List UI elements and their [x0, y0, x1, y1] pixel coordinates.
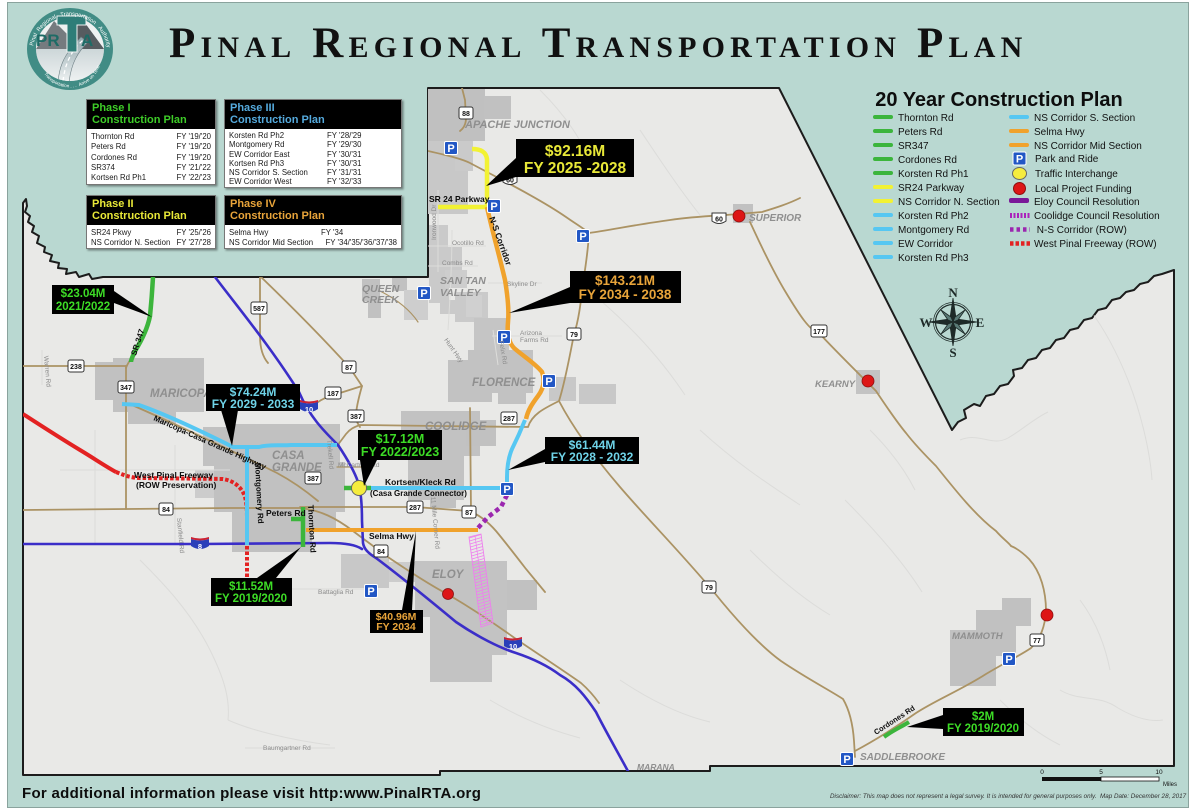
svg-text:8: 8 [198, 542, 202, 551]
svg-text:FY 2025 -2028: FY 2025 -2028 [524, 160, 627, 177]
svg-text:N: N [948, 285, 958, 300]
svg-text:MARANA: MARANA [637, 762, 675, 772]
svg-text:Peters Rd: Peters Rd [266, 508, 306, 518]
svg-text:Baumgartner Rd: Baumgartner Rd [263, 745, 311, 752]
svg-text:77: 77 [1033, 638, 1041, 645]
svg-text:Combs Rd: Combs Rd [442, 260, 473, 267]
svg-text:238: 238 [70, 364, 82, 371]
svg-text:$92.16M: $92.16M [545, 143, 605, 160]
svg-text:$23.04M: $23.04M [61, 288, 106, 300]
svg-text:CREEK: CREEK [362, 294, 400, 306]
svg-text:84: 84 [162, 507, 170, 514]
svg-text:Ironwood Dr: Ironwood Dr [431, 204, 438, 240]
svg-text:KEARNY: KEARNY [815, 379, 857, 390]
svg-text:10: 10 [509, 642, 517, 651]
svg-text:$11.52M: $11.52M [229, 581, 273, 593]
svg-text:(ROW Preservation): (ROW Preservation) [136, 480, 216, 490]
svg-text:Arizona: Arizona [520, 330, 542, 337]
svg-text:SUPERIOR: SUPERIOR [749, 213, 802, 224]
svg-text:A: A [81, 31, 93, 50]
svg-text:CASA: CASA [272, 450, 305, 462]
svg-text:MAMMOTH: MAMMOTH [952, 631, 1004, 642]
svg-text:5: 5 [1099, 769, 1103, 776]
svg-text:84: 84 [377, 549, 385, 556]
svg-text:Selma Hwy: Selma Hwy [369, 531, 414, 541]
svg-text:FLORENCE: FLORENCE [472, 377, 536, 389]
svg-text:$2M: $2M [972, 711, 994, 723]
svg-text:387: 387 [350, 414, 362, 421]
svg-text:S: S [949, 345, 956, 360]
svg-text:79: 79 [570, 332, 578, 339]
svg-text:P: P [1016, 154, 1023, 166]
svg-text:177: 177 [813, 329, 825, 336]
svg-text:88: 88 [462, 111, 470, 118]
svg-text:87: 87 [345, 365, 353, 372]
svg-text:Skyline Dr: Skyline Dr [507, 281, 537, 288]
svg-text:(Casa Grande Connector): (Casa Grande Connector) [370, 489, 467, 498]
svg-text:187: 187 [327, 391, 339, 398]
svg-text:FY 2019/2020: FY 2019/2020 [947, 723, 1019, 735]
svg-text:SAN TAN: SAN TAN [440, 275, 486, 287]
svg-text:2021/2022: 2021/2022 [56, 301, 110, 313]
svg-text:287: 287 [409, 505, 421, 512]
svg-text:Ocotillo Rd: Ocotillo Rd [452, 240, 484, 247]
svg-text:APACHE JUNCTION: APACHE JUNCTION [464, 119, 571, 131]
svg-text:VALLEY: VALLEY [440, 287, 482, 299]
svg-text:Miles: Miles [1163, 782, 1177, 788]
svg-text:FY 2029 - 2033: FY 2029 - 2033 [212, 397, 295, 411]
svg-text:Kortsen/Kleck Rd: Kortsen/Kleck Rd [385, 477, 456, 487]
svg-text:MARICOPA: MARICOPA [150, 388, 212, 400]
svg-text:$17.12M: $17.12M [376, 432, 425, 446]
svg-text:FY 2034 - 2038: FY 2034 - 2038 [579, 287, 672, 302]
svg-text:W: W [920, 315, 933, 330]
svg-text:Battaglia Rd: Battaglia Rd [318, 589, 354, 596]
svg-text:Farms Rd: Farms Rd [520, 337, 549, 344]
svg-text:FY 2022/2023: FY 2022/2023 [361, 445, 439, 459]
svg-text:60: 60 [715, 217, 723, 224]
svg-text:ELOY: ELOY [432, 569, 465, 581]
svg-text:$143.21M: $143.21M [595, 273, 655, 288]
svg-text:0: 0 [1040, 769, 1044, 776]
svg-text:287: 287 [503, 416, 515, 423]
svg-text:SADDLEBROOKE: SADDLEBROOKE [860, 752, 945, 763]
svg-text:87: 87 [465, 510, 473, 517]
svg-text:FY 2034: FY 2034 [376, 621, 416, 633]
svg-text:387: 387 [307, 476, 319, 483]
svg-text:FY 2028 - 2032: FY 2028 - 2032 [551, 450, 634, 464]
svg-text:79: 79 [705, 585, 713, 592]
svg-text:347: 347 [120, 385, 132, 392]
svg-text:West Pinal Freeway: West Pinal Freeway [134, 470, 213, 480]
svg-text:10: 10 [1155, 769, 1163, 776]
svg-text:FY 2019/2020: FY 2019/2020 [215, 593, 287, 605]
svg-text:587: 587 [253, 306, 265, 313]
svg-text:SR 24 Parkway: SR 24 Parkway [429, 194, 490, 204]
svg-text:E: E [976, 315, 985, 330]
svg-text:10: 10 [305, 405, 313, 414]
